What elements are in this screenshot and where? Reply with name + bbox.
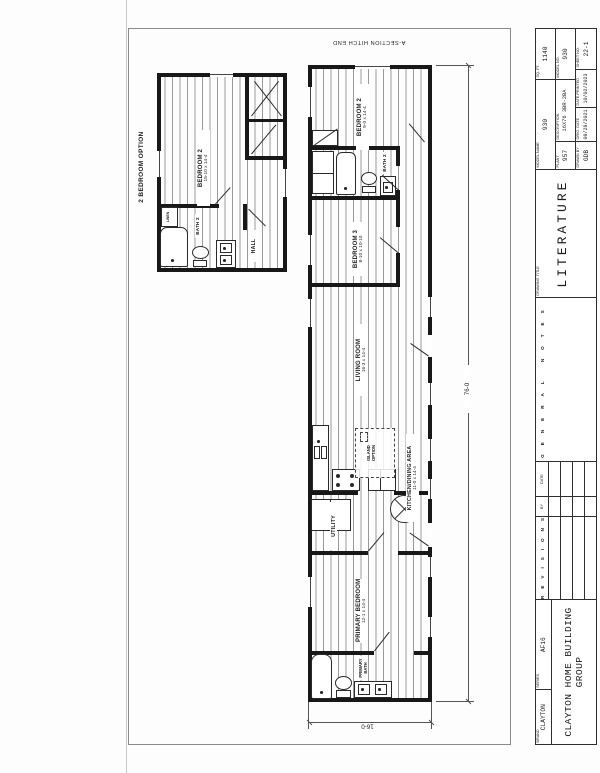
- wall-hall: [396, 200, 400, 227]
- window: [157, 151, 161, 177]
- wall-closet: [245, 73, 249, 160]
- toilet-icon: [335, 676, 352, 690]
- sqft-value: 1140: [543, 29, 549, 79]
- drawing-title-section: DRAWING TITLE LITERATURE: [536, 169, 596, 297]
- burner: [336, 483, 340, 487]
- window: [428, 617, 432, 637]
- window: [428, 383, 432, 405]
- faucet-dot: [223, 260, 226, 263]
- wall-hall-option: [243, 204, 247, 230]
- option-bedroom2-label: BEDROOM 2 15-10 x 14-4: [197, 130, 210, 206]
- primary-bedroom-label: PRIMARY BEDROOM 12-1 x 14-4: [355, 579, 368, 643]
- tub-drain: [344, 188, 347, 191]
- drawn-by-value: GDB: [584, 142, 590, 169]
- sink-bowl: [321, 446, 327, 459]
- main-floor-plan: PRIMARY BATH PRIMARY BEDROOM 12-1 x 14-4…: [308, 65, 432, 702]
- revision-row: [585, 462, 596, 599]
- option-plan-title: 2 BEDROOM OPTION: [138, 117, 148, 217]
- sink-icon: [358, 684, 370, 695]
- model-no-value: 930: [563, 29, 569, 79]
- drawing-sheet: A-SECTION HITCH END: [128, 28, 597, 745]
- front-door-leaf: [410, 343, 429, 357]
- orig-date-value: 09/29/2021: [584, 108, 589, 141]
- brand-value: CLAYTON: [541, 690, 547, 744]
- toilet-tank: [193, 260, 207, 267]
- sink-bowl: [314, 446, 320, 459]
- dim-width-text: 16-0: [349, 723, 387, 730]
- burner: [350, 474, 354, 478]
- toilet-tank: [362, 186, 376, 193]
- linen-label: LINEN: [166, 208, 170, 226]
- revision-row: [561, 462, 573, 599]
- general-notes-title: GENERAL NOTES: [540, 298, 545, 461]
- toilet-tank: [336, 690, 351, 698]
- wall-bath2: [312, 196, 400, 200]
- drawing-title-label: DRAWING TITLE: [536, 170, 541, 297]
- revisions-date-header: DATE: [536, 462, 548, 496]
- closet-rod-line: [251, 81, 279, 116]
- door-leaf: [215, 187, 231, 204]
- room-name: BATH 2: [382, 152, 387, 174]
- option-bath2-label: BATH 2: [195, 214, 200, 238]
- island-sink-dashed: [360, 432, 368, 442]
- burner: [336, 474, 340, 478]
- tub-drain: [320, 692, 323, 695]
- sink-icon: [375, 684, 387, 695]
- utility-label: UTILITY: [330, 502, 337, 550]
- window: [428, 557, 432, 577]
- title-block: BRAND CLAYTON SERIES AF16 CLAYTON HOME B…: [535, 28, 597, 745]
- hall-label: HALL: [251, 230, 258, 262]
- window: [283, 169, 287, 197]
- room-dims: 8-10 x 10-10: [359, 223, 365, 275]
- tub-icon: [160, 227, 188, 267]
- company-name: CLAYTON HOME BUILDING GROUP: [552, 600, 596, 744]
- door-leaf: [248, 209, 266, 227]
- closet-divider-wall: [249, 119, 287, 122]
- door-leaf: [368, 532, 384, 551]
- room-dims: 11-0 x 14-4: [413, 435, 419, 521]
- door-leaf: [409, 123, 425, 142]
- door-leaf: [380, 237, 399, 253]
- section-hitch-end-label: A-SECTION HITCH END: [324, 35, 414, 45]
- model-name-value: 930: [543, 80, 549, 169]
- revisions-by-header: BY: [536, 496, 548, 516]
- page-fold-edge: [126, 0, 127, 773]
- wall-bedroom3: [312, 283, 396, 287]
- dim-ext: [308, 702, 309, 729]
- primary-bath-line2: BATH: [363, 656, 368, 680]
- sink-icon: [220, 243, 232, 253]
- room-name: UTILITY: [331, 503, 337, 549]
- wall-kitchen: [312, 491, 358, 495]
- drawing-title-value: LITERATURE: [555, 170, 570, 297]
- room-name: KITCHEN/DINING AREA: [407, 435, 413, 521]
- wall-primary-bath: [414, 651, 428, 655]
- closet-divider: [312, 173, 334, 174]
- faucet-dot: [378, 689, 381, 692]
- kitchen-label: KITCHEN/DINING AREA 11-0 x 14-4: [406, 434, 419, 522]
- scanned-literature-sheet: A-SECTION HITCH END: [0, 0, 600, 773]
- landscape-content: A-SECTION HITCH END: [128, 28, 597, 745]
- rear-door-opening: [428, 523, 432, 547]
- burner: [350, 483, 354, 487]
- plant-label: PLANT: [556, 142, 561, 169]
- island-line2: OPTION: [371, 436, 376, 470]
- end-window: [355, 65, 390, 69]
- sink-icon: [220, 255, 232, 265]
- faucet-dot: [361, 689, 364, 692]
- model-name-label: MODEL NAME: [536, 80, 541, 169]
- closet-rod-line: [254, 81, 282, 116]
- end-window: [210, 73, 233, 77]
- window: [308, 235, 312, 265]
- wall-hall: [396, 253, 400, 287]
- sqft-label: SQ. FT.: [536, 29, 541, 79]
- description-value: 16X76 3BR-2BA: [563, 80, 568, 141]
- sheet-no-label: SHEET NO.: [576, 29, 581, 69]
- window: [428, 297, 432, 317]
- orig-date-label: ORIG. DATE: [576, 108, 581, 141]
- bedroom3-label: BEDROOM 3 8-10 x 10-10: [352, 222, 365, 276]
- window: [428, 479, 432, 499]
- room-dims: 15-10 x 14-4: [204, 131, 210, 205]
- wall-utility: [398, 551, 428, 555]
- window: [428, 439, 432, 461]
- company-section: BRAND CLAYTON SERIES AF16 CLAYTON HOME B…: [536, 599, 596, 744]
- window: [308, 87, 312, 117]
- toilet-icon: [192, 246, 209, 259]
- room-dims: 16-3 x 14-4: [362, 325, 368, 395]
- revisions-section: REVISIONS BY DATE: [536, 461, 596, 599]
- primary-bath-label: PRIMARY BATH: [358, 656, 368, 680]
- room-dims: 12-1 x 14-4: [362, 580, 368, 642]
- series-value: AF16: [541, 600, 547, 689]
- dim-length-text: 76-0: [464, 365, 471, 413]
- plant-value: 957: [563, 142, 569, 169]
- tub-drain: [171, 260, 174, 263]
- bath2-label: BATH 2: [382, 152, 387, 174]
- revision-row: [573, 462, 585, 599]
- faucet-dot: [385, 187, 388, 190]
- general-notes-section: GENERAL NOTES: [536, 297, 596, 461]
- revisions-title: REVISIONS: [536, 516, 548, 599]
- date-printed-label: DATE PRINTED: [576, 70, 581, 107]
- description-label: DESCRIPTION: [556, 80, 561, 141]
- wall-bath2-door-jamb: [396, 190, 400, 200]
- faucet-dot: [317, 441, 320, 444]
- rear-door-leaf: [409, 532, 429, 546]
- door-leaf: [374, 632, 390, 652]
- option-floor-plan: LINEN BATH 2 HALL: [157, 73, 287, 272]
- toilet-icon: [361, 172, 377, 185]
- model-no-label: MODEL NO.: [556, 29, 561, 79]
- bedroom2-label: BEDROOM 2 9-0 x 14-4: [356, 84, 369, 150]
- window: [308, 577, 312, 607]
- wall-closet: [245, 156, 287, 160]
- revision-row: [549, 462, 561, 599]
- room-name: HALL: [252, 231, 258, 261]
- wall-bath2-door-jamb: [396, 150, 400, 166]
- window: [308, 299, 312, 327]
- dim-ext: [431, 702, 432, 729]
- info-grid-section: MODEL NAME 930 SQ. FT. 1140 PLANT 957: [536, 29, 596, 169]
- wall-utility: [312, 551, 368, 555]
- closet-rod-line: [251, 125, 276, 155]
- room-name: BATH 2: [195, 214, 200, 238]
- drawn-by-label: DRAWN BY: [576, 142, 581, 169]
- wall: [157, 268, 287, 272]
- sheet-no-value: 22-1: [584, 29, 590, 69]
- room-dims: 9-0 x 14-4: [363, 85, 369, 149]
- faucet-dot: [223, 248, 226, 251]
- front-door-opening: [428, 335, 432, 357]
- date-printed-value: 10/02/2023: [584, 70, 589, 107]
- living-room-label: LIVING ROOM 16-3 x 14-4: [355, 324, 368, 396]
